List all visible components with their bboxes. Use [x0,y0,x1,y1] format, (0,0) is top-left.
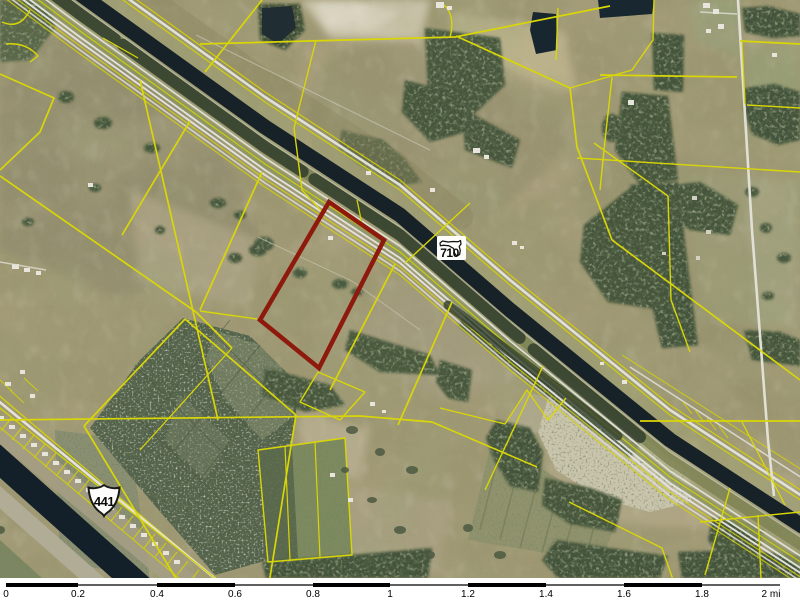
svg-text:1.8: 1.8 [695,589,709,600]
svg-text:0.8: 0.8 [306,589,320,600]
svg-text:0: 0 [3,589,9,600]
svg-text:2 mi: 2 mi [762,589,781,600]
svg-text:1.2: 1.2 [461,589,475,600]
svg-text:1.6: 1.6 [617,589,631,600]
svg-text:0.2: 0.2 [71,589,85,600]
svg-text:1.4: 1.4 [539,589,553,600]
svg-text:0.6: 0.6 [228,589,242,600]
svg-text:0.4: 0.4 [150,589,164,600]
svg-text:1: 1 [387,589,393,600]
svg-text:710: 710 [440,246,459,260]
svg-text:441: 441 [94,494,114,509]
